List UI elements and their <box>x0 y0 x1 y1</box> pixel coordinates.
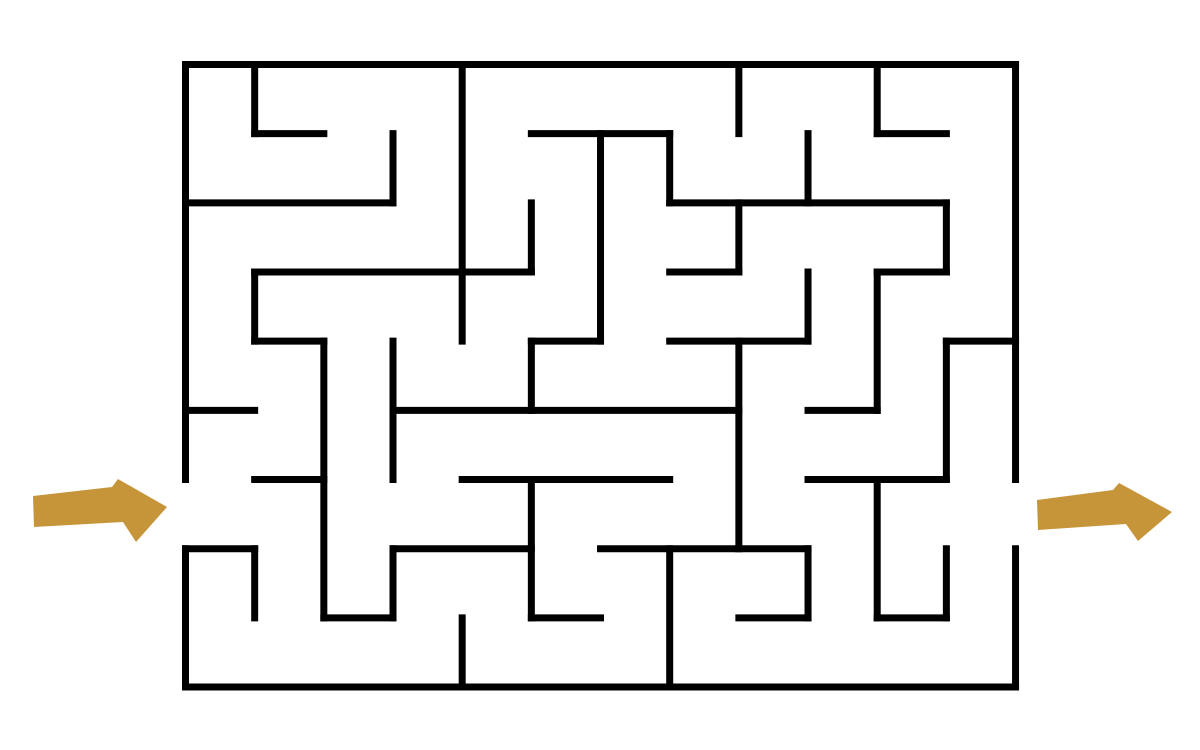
maze-walls <box>186 65 1016 688</box>
exit-arrow <box>1037 483 1172 541</box>
maze-puzzle-page <box>0 0 1200 750</box>
entrance-arrow <box>33 479 167 542</box>
maze-arrows <box>33 479 1172 542</box>
maze-image <box>0 0 1200 750</box>
